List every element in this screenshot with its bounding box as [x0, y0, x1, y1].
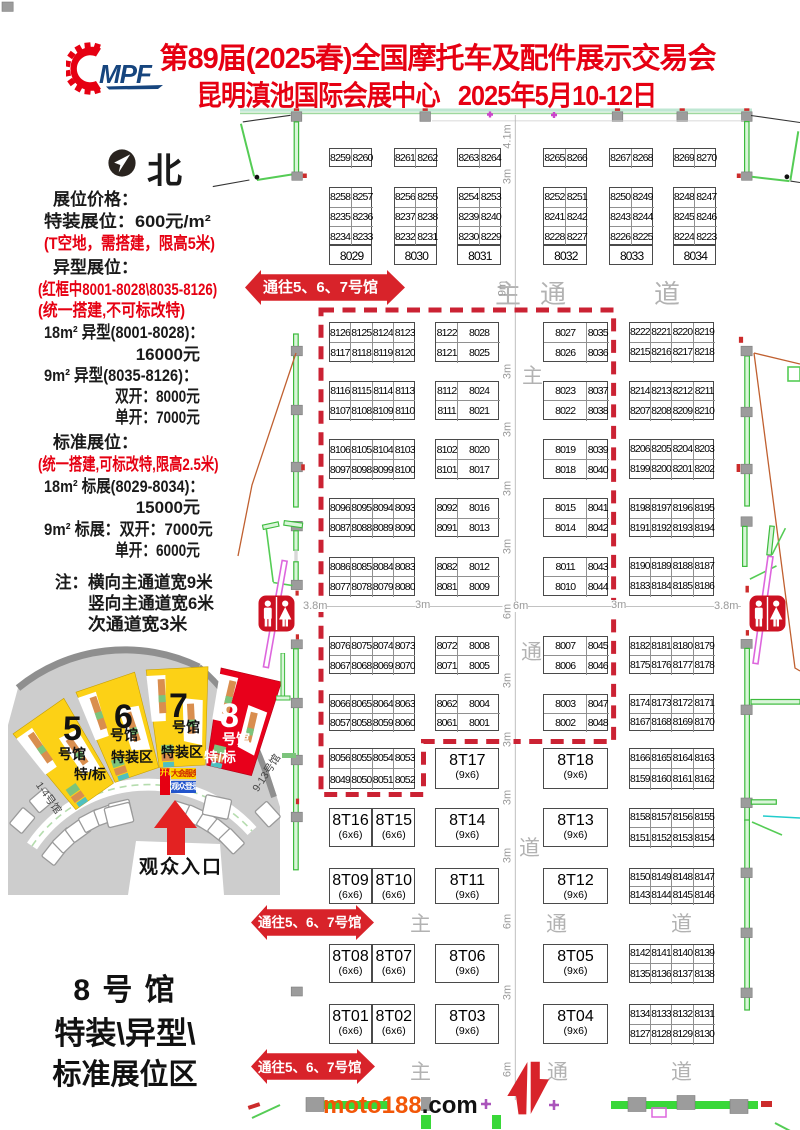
svg-text:MPF: MPF — [99, 59, 153, 89]
